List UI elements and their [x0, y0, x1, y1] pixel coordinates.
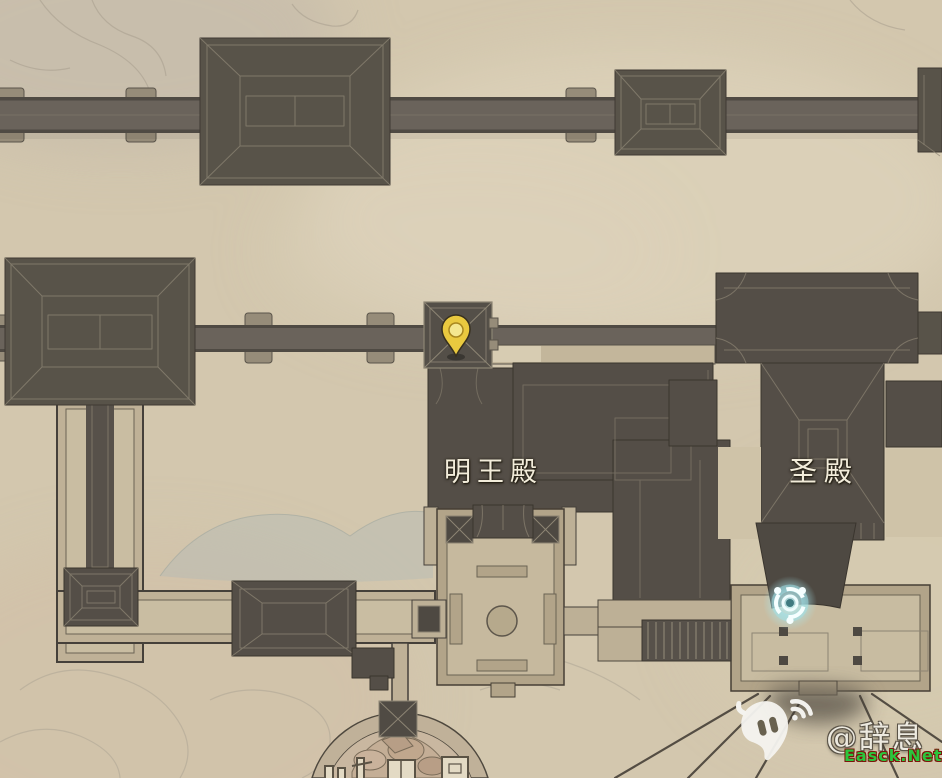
hall-roof-overhang — [473, 505, 533, 538]
map-canvas[interactable] — [0, 0, 942, 778]
stair-terrace — [598, 600, 731, 661]
small-rooms — [352, 648, 394, 678]
label-mingwangdian: 明王殿 — [444, 450, 543, 489]
hall-center-dais — [487, 606, 517, 636]
game-map-screen: 明王殿 圣殿 @辞息 Easck.Net — [0, 0, 942, 778]
label-shengdian: 圣殿 — [789, 450, 859, 490]
building-east-stub — [916, 312, 942, 354]
building-west — [5, 258, 195, 405]
building-north-east — [918, 68, 942, 156]
building-north-center — [615, 70, 726, 155]
hall-altar — [477, 566, 527, 577]
building-south-gate — [232, 581, 356, 656]
building-north-west — [200, 38, 390, 185]
corridor-wall — [86, 398, 114, 573]
watermark-site: Easck.Net — [844, 746, 942, 765]
gate-to-courtyard — [379, 701, 417, 737]
building-corridor-gate — [64, 568, 138, 626]
player-position-marker — [763, 576, 817, 630]
